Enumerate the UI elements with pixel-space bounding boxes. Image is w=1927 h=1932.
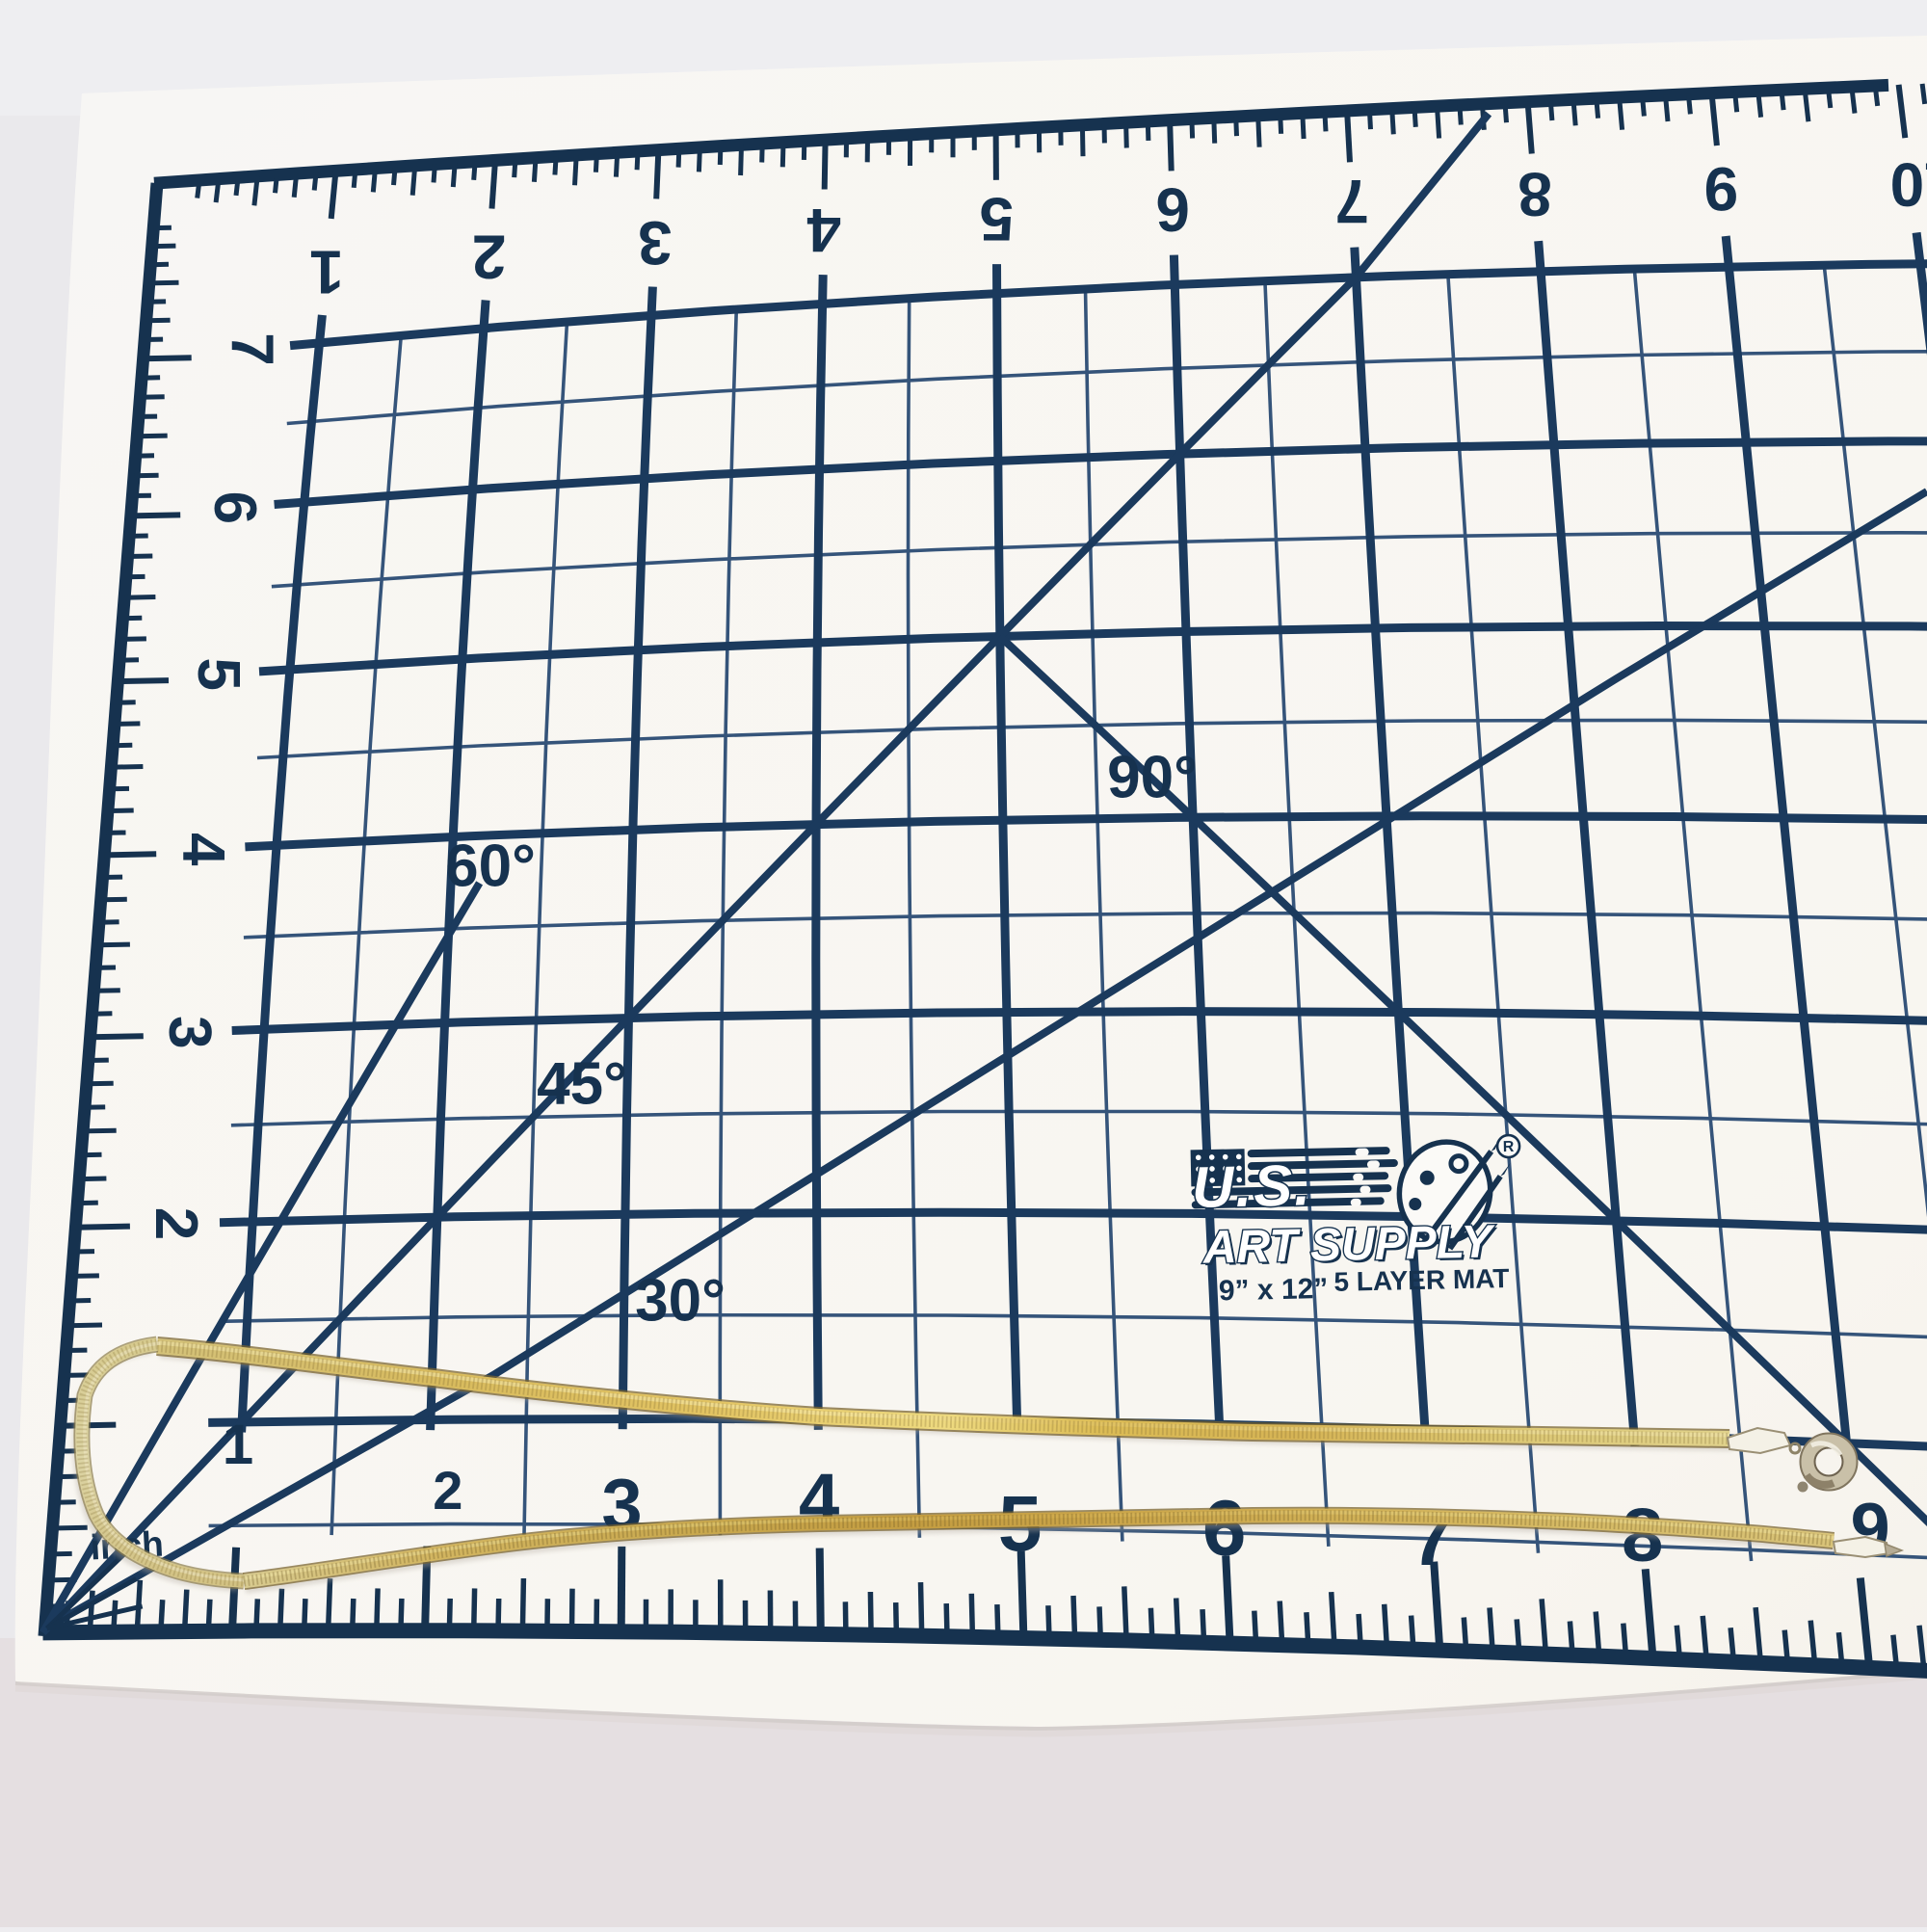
svg-text:10: 10 [1890, 150, 1927, 220]
svg-text:U.S.: U.S. [1191, 1152, 1312, 1220]
svg-text:60°: 60° [445, 834, 536, 900]
svg-text:6: 6 [1155, 174, 1190, 244]
svg-text:30°: 30° [635, 1268, 726, 1335]
svg-text:3: 3 [156, 1016, 223, 1048]
svg-text:90°: 90° [1107, 745, 1198, 811]
svg-text:3: 3 [638, 208, 673, 278]
svg-text:5 LAYER MAT: 5 LAYER MAT [1333, 1263, 1510, 1297]
svg-text:7: 7 [1411, 1495, 1455, 1582]
svg-text:8: 8 [1518, 160, 1552, 229]
svg-text:R: R [1503, 1139, 1515, 1155]
svg-text:9” x 12”: 9” x 12” [1219, 1273, 1329, 1307]
svg-text:7: 7 [1335, 167, 1370, 236]
svg-text:2: 2 [143, 1207, 209, 1240]
svg-text:4: 4 [171, 833, 237, 866]
svg-text:7: 7 [218, 332, 284, 365]
svg-text:1: 1 [309, 238, 344, 307]
svg-text:2: 2 [472, 223, 507, 292]
svg-text:9: 9 [1704, 154, 1739, 224]
svg-text:5: 5 [980, 185, 1015, 254]
svg-text:4: 4 [806, 196, 841, 265]
svg-text:1: 1 [223, 1414, 253, 1476]
svg-text:45°: 45° [537, 1051, 627, 1118]
svg-text:2: 2 [433, 1460, 462, 1521]
svg-text:6: 6 [201, 491, 268, 524]
svg-text:5: 5 [185, 658, 251, 691]
